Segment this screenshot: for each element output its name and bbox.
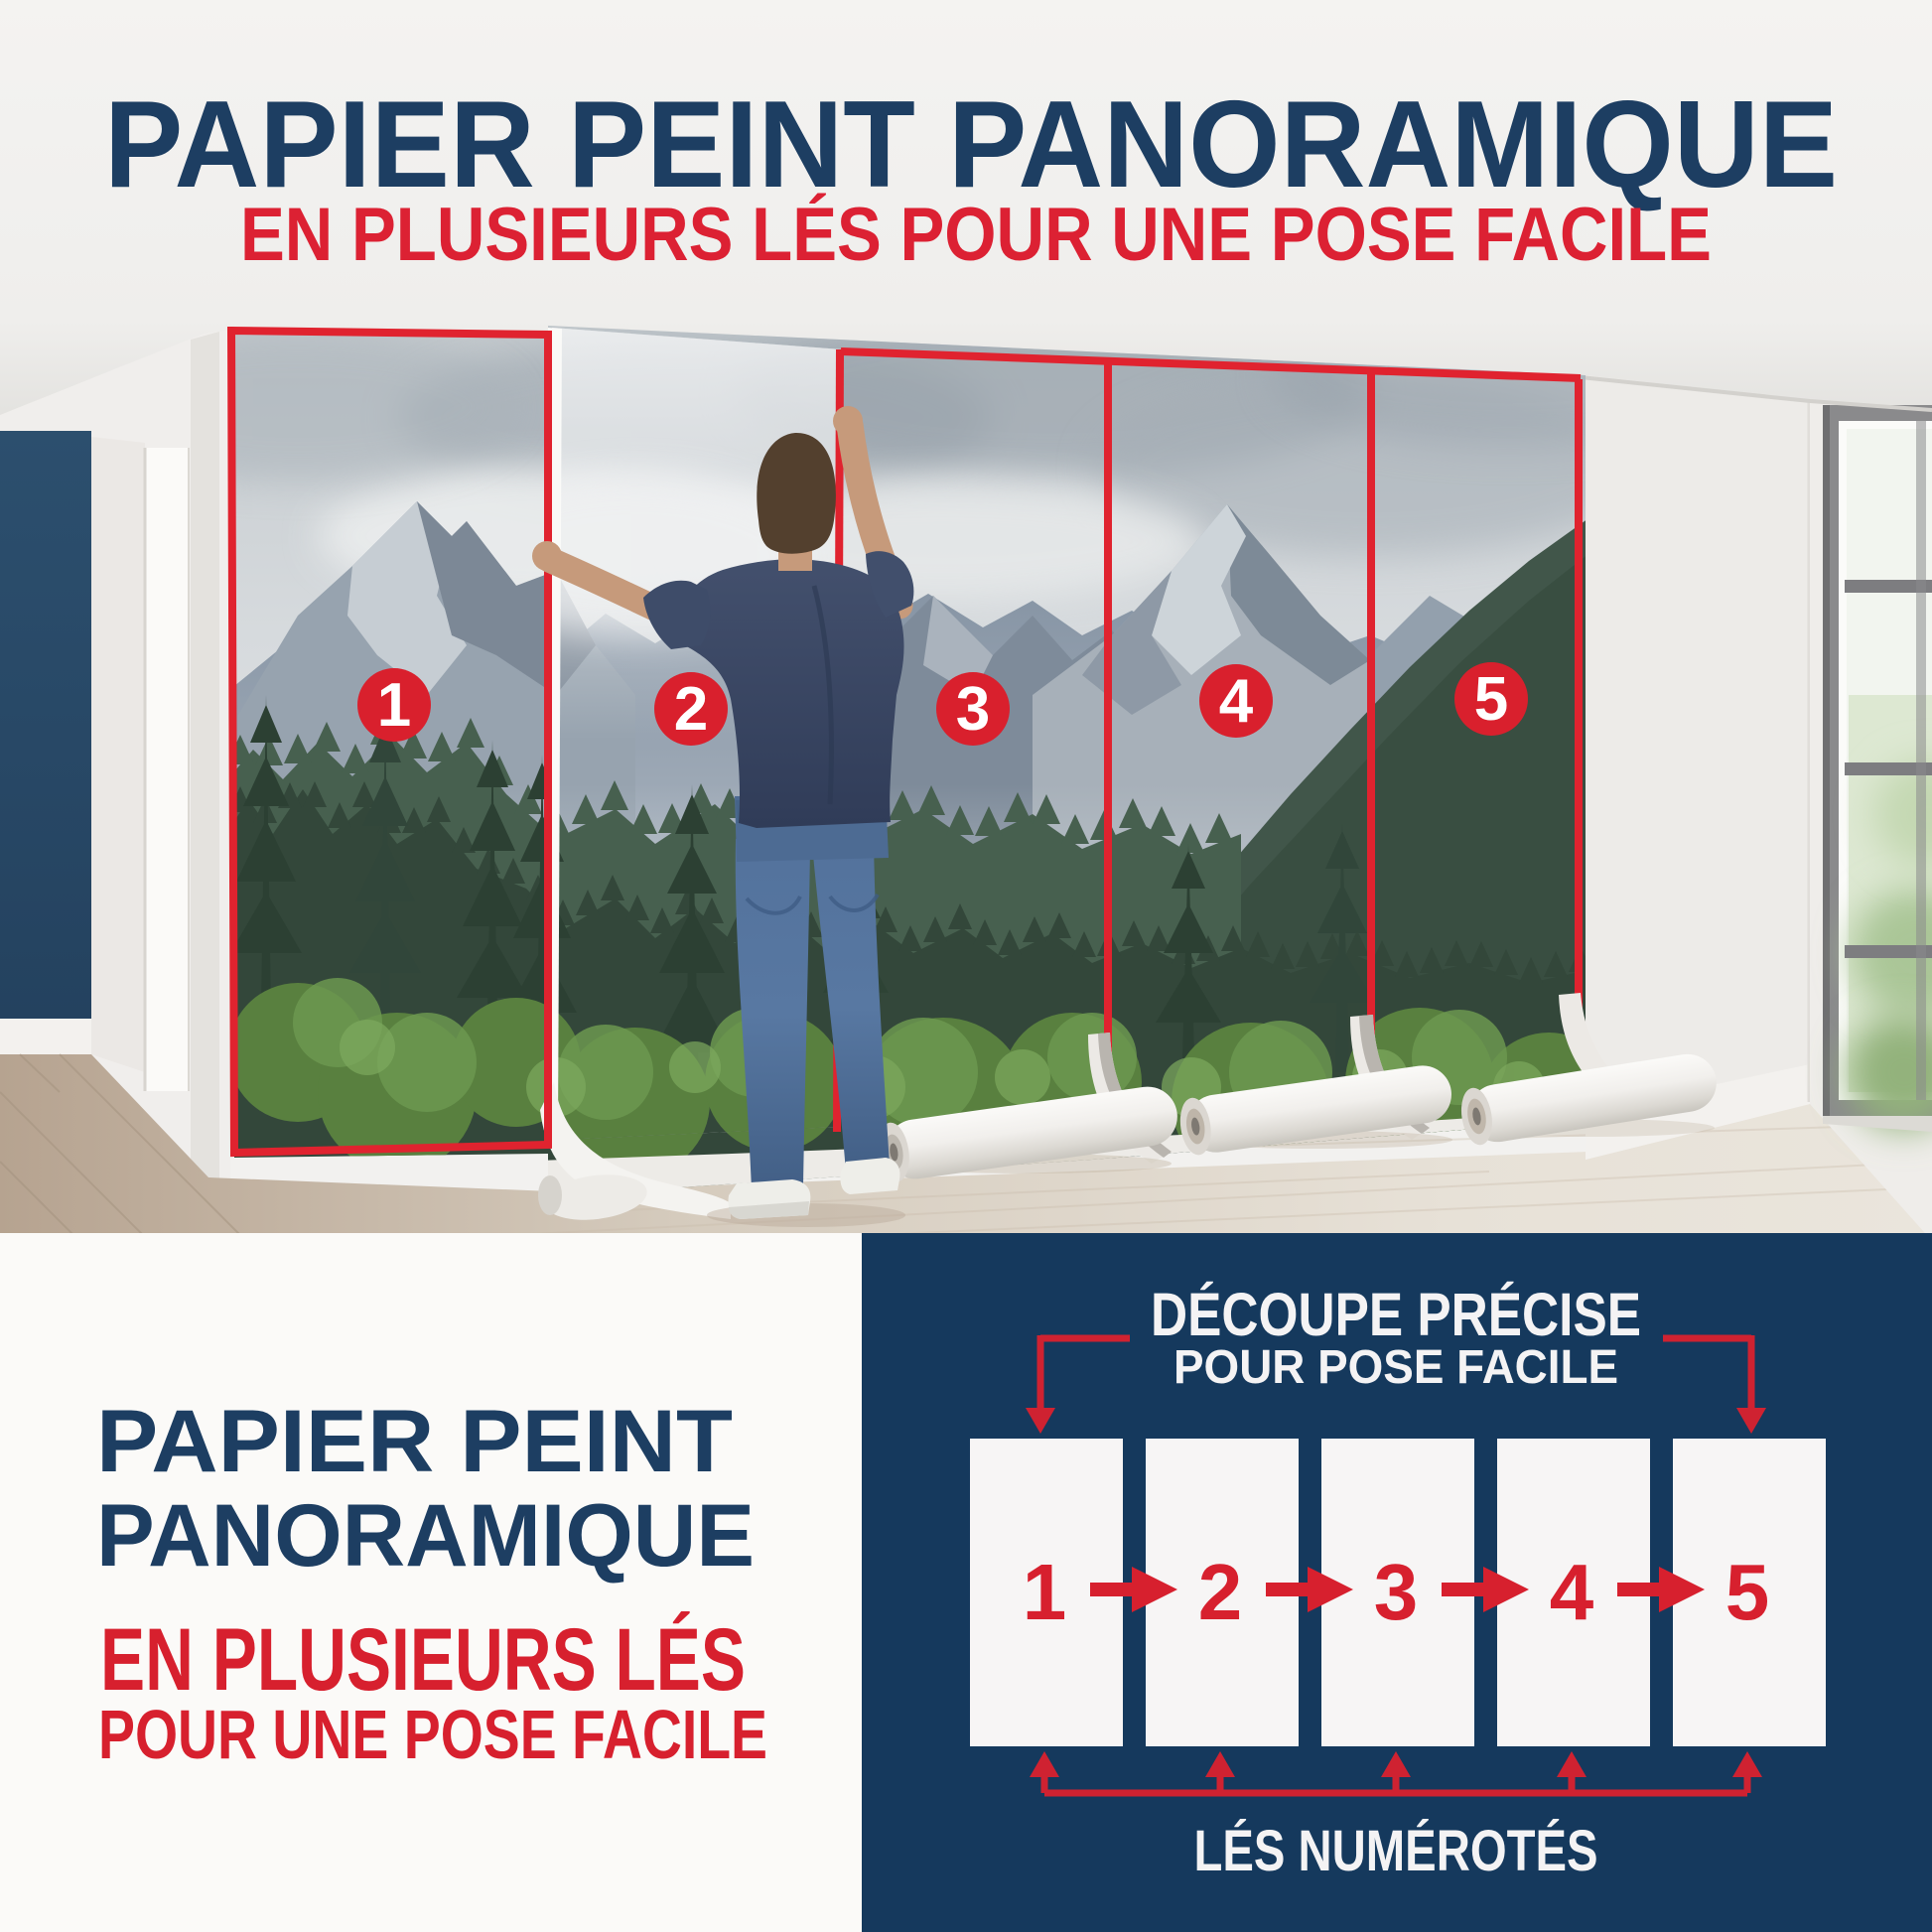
svg-text:5: 5 <box>1725 1548 1770 1636</box>
svg-text:3: 3 <box>956 675 990 744</box>
svg-text:3: 3 <box>1374 1548 1419 1636</box>
svg-text:PANORAMIQUE: PANORAMIQUE <box>96 1485 755 1585</box>
svg-text:4: 4 <box>1550 1548 1594 1636</box>
svg-text:1: 1 <box>377 671 411 740</box>
svg-text:PAPIER PEINT: PAPIER PEINT <box>96 1391 733 1490</box>
svg-text:EN PLUSIEURS LÉS: EN PLUSIEURS LÉS <box>100 1609 746 1709</box>
svg-text:4: 4 <box>1219 667 1254 736</box>
svg-text:EN PLUSIEURS LÉS POUR UNE POSE: EN PLUSIEURS LÉS POUR UNE POSE FACILE <box>240 193 1712 277</box>
svg-text:POUR UNE POSE FACILE: POUR UNE POSE FACILE <box>98 1696 767 1773</box>
svg-text:DÉCOUPE PRÉCISE: DÉCOUPE PRÉCISE <box>1151 1281 1641 1348</box>
svg-text:1: 1 <box>1023 1548 1067 1636</box>
svg-text:LÉS NUMÉROTÉS: LÉS NUMÉROTÉS <box>1194 1819 1598 1883</box>
svg-text:5: 5 <box>1474 665 1508 734</box>
svg-text:2: 2 <box>1198 1548 1243 1636</box>
svg-text:2: 2 <box>674 675 708 744</box>
svg-text:POUR POSE FACILE: POUR POSE FACILE <box>1173 1341 1618 1394</box>
